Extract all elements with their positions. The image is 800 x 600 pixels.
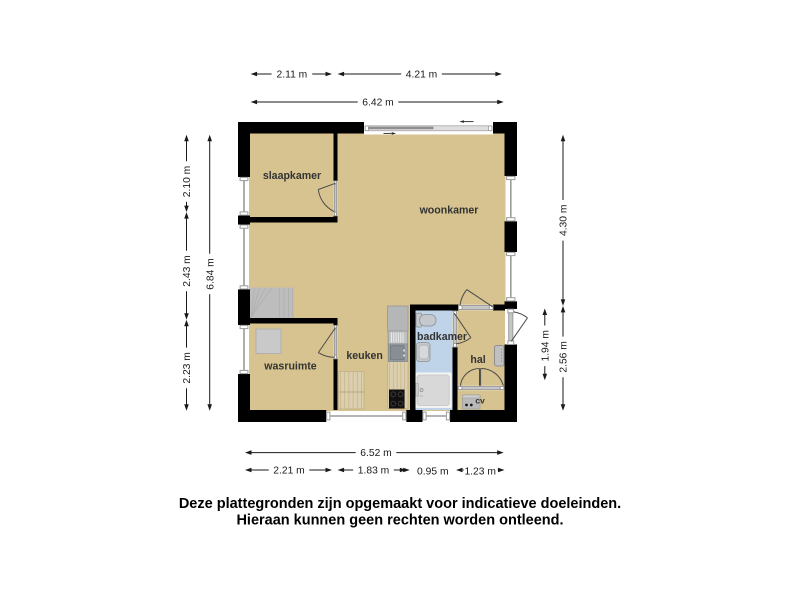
svg-text:0.95 m: 0.95 m: [417, 466, 448, 477]
svg-text:woonkamer: woonkamer: [419, 205, 479, 217]
svg-text:6.84 m: 6.84 m: [205, 258, 216, 289]
svg-text:6.42 m: 6.42 m: [362, 98, 393, 109]
svg-text:keuken: keuken: [346, 350, 383, 362]
svg-text:1.94 m: 1.94 m: [540, 330, 551, 361]
svg-text:2.11 m: 2.11 m: [277, 70, 308, 81]
svg-text:6.52 m: 6.52 m: [360, 448, 391, 459]
svg-text:2.56 m: 2.56 m: [559, 341, 570, 372]
svg-text:wasruimte: wasruimte: [263, 361, 317, 373]
svg-text:slaapkamer: slaapkamer: [263, 170, 321, 182]
svg-text:2.23 m: 2.23 m: [182, 352, 193, 383]
svg-text:cv: cv: [475, 395, 485, 405]
svg-text:1.83 m: 1.83 m: [358, 466, 389, 477]
svg-text:4.30 m: 4.30 m: [559, 205, 570, 236]
svg-text:2.43 m: 2.43 m: [182, 255, 193, 286]
svg-text:Hieraan kunnen geen rechten wo: Hieraan kunnen geen rechten worden ontle…: [236, 513, 563, 529]
svg-text:1.23 m: 1.23 m: [464, 466, 495, 477]
svg-text:Deze plattegronden zijn opgema: Deze plattegronden zijn opgemaakt voor i…: [179, 496, 621, 512]
svg-text:4.21 m: 4.21 m: [406, 70, 437, 81]
svg-text:hal: hal: [470, 354, 485, 366]
svg-text:badkamer: badkamer: [417, 331, 467, 343]
svg-text:2.10 m: 2.10 m: [182, 166, 193, 197]
svg-text:2.21 m: 2.21 m: [273, 466, 304, 477]
